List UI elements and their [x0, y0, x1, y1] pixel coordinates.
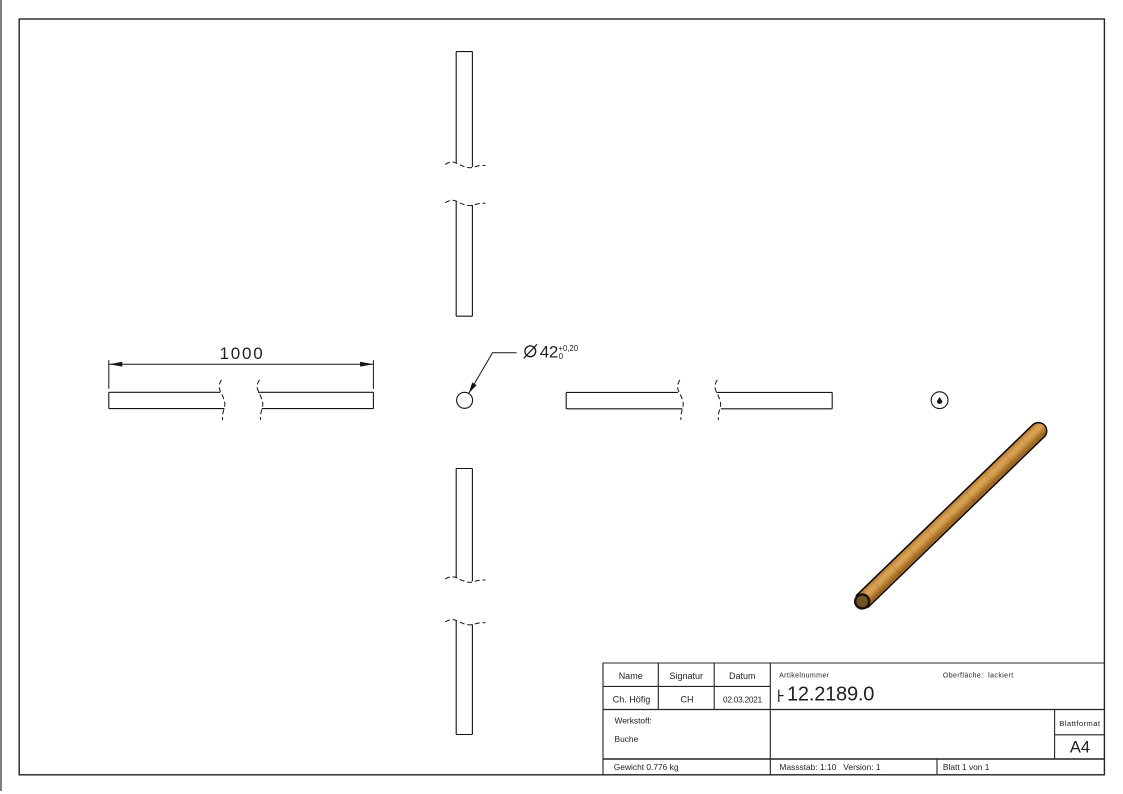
svg-text:CH: CH [681, 695, 694, 705]
svg-text:12.2189.0: 12.2189.0 [787, 683, 874, 705]
svg-text:Artikelnummer: Artikelnummer [779, 672, 830, 679]
svg-text:Ch. Höfig: Ch. Höfig [613, 695, 651, 705]
svg-text:Datum: Datum [729, 671, 756, 681]
svg-text:Massstab: 1:10: Massstab: 1:10 [780, 762, 837, 772]
svg-text:Blatt 1 von 1: Blatt 1 von 1 [943, 762, 990, 772]
svg-text:Signatur: Signatur [670, 671, 704, 681]
svg-text:1000: 1000 [219, 344, 264, 363]
svg-text:A4: A4 [1070, 738, 1090, 756]
svg-text:Werkstoff:: Werkstoff: [615, 716, 652, 726]
svg-text:Gewicht 0.776 kg: Gewicht 0.776 kg [614, 762, 679, 772]
svg-text:Buche: Buche [615, 734, 639, 744]
svg-text:Blattformat: Blattformat [1059, 719, 1101, 728]
svg-text:42: 42 [540, 343, 558, 362]
svg-text:Version: 1: Version: 1 [843, 762, 881, 772]
svg-text:0: 0 [559, 352, 564, 361]
svg-text:Name: Name [619, 671, 643, 681]
svg-text:Oberfläche: lackiert: Oberfläche: lackiert [943, 673, 1014, 680]
svg-text:02.03.2021: 02.03.2021 [723, 696, 763, 705]
